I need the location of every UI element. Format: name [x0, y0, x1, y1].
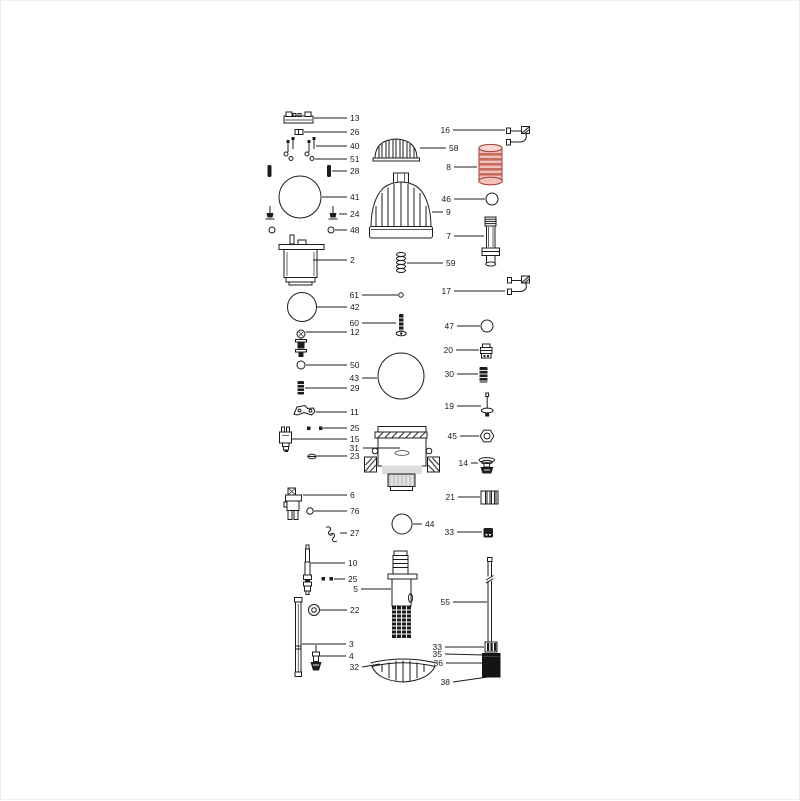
- callout-22-nut: 22: [320, 605, 360, 615]
- callout-61-pin-small: 61: [350, 290, 398, 300]
- callout-number: 29: [350, 383, 360, 393]
- callout-number: 6: [350, 490, 355, 500]
- callout-number: 19: [445, 401, 455, 411]
- part-46-o-ring: [486, 193, 498, 205]
- part-14-valve-poppet: [479, 458, 495, 474]
- callout-number: 33: [445, 527, 455, 537]
- callout-number: 25: [348, 574, 358, 584]
- callout-number: 9: [446, 207, 451, 217]
- callout-6-valve-assembly: 6: [303, 490, 355, 500]
- callout-3-tube-long: 3: [302, 639, 354, 649]
- parts-diagram-page: 1326405128412448261426012504329112515312…: [0, 0, 800, 800]
- callout-21-threaded-insert: 21: [446, 492, 480, 502]
- part-33-collar-ribbed: [485, 642, 497, 652]
- part-5-impeller-assembly: [388, 551, 417, 638]
- callout-13-clamp-bar: 13: [314, 113, 360, 123]
- callout-25-square-nuts: 25: [334, 574, 358, 584]
- callout-number: 55: [441, 597, 451, 607]
- callout-number: 38: [441, 677, 451, 687]
- callout-number: 30: [445, 369, 455, 379]
- callout-number: 41: [350, 192, 360, 202]
- part-6-valve-assembly: [284, 488, 302, 520]
- callout-number: 20: [444, 345, 454, 355]
- callout-25-square-nuts: 25: [323, 423, 360, 433]
- callout-number: 26: [350, 127, 360, 137]
- callout-38-float-block-bottom: 38: [441, 677, 488, 687]
- callout-number: 76: [350, 506, 360, 516]
- part-23-clip-small: [308, 454, 317, 458]
- callout-number: 13: [350, 113, 360, 123]
- callout-number: 24: [350, 209, 360, 219]
- part-47-o-ring: [481, 320, 493, 332]
- callout-4-valve-small: 4: [320, 651, 354, 661]
- part-40-screws: [287, 137, 316, 152]
- part-12-bolt-assembly: [296, 330, 307, 357]
- part-17-hose-hook: [508, 276, 530, 295]
- callout-46-o-ring: 46: [442, 194, 485, 204]
- callout-number: 28: [350, 166, 360, 176]
- part-25-square-nuts-a: [307, 427, 323, 431]
- callout-number: 21: [446, 492, 456, 502]
- callout-48-rings-small: 48: [335, 225, 360, 235]
- callout-45-hex-nut: 45: [448, 431, 479, 441]
- callout-number: 59: [446, 258, 456, 268]
- part-50-o-ring-small: [297, 361, 305, 369]
- callout-26-retainer-clip: 26: [304, 127, 360, 137]
- part-29-pin-ribbed: [298, 381, 305, 395]
- part-16-hose-hook: [507, 127, 530, 146]
- callout-44-o-ring-medium: 44: [413, 519, 435, 529]
- callout-58-cap-striped: 58: [420, 143, 459, 153]
- part-21-threaded-insert: [481, 491, 498, 504]
- callout-number: 46: [442, 194, 452, 204]
- part-10-shaft-rod: [304, 545, 312, 595]
- part-7-outlet-fitting: [482, 217, 500, 266]
- callout-7-outlet-fitting: 7: [446, 231, 484, 241]
- leader-line: [453, 677, 488, 682]
- part-19-screw-long: [481, 393, 493, 417]
- part-51-washers: [284, 152, 314, 161]
- callout-55-float-rod: 55: [441, 597, 487, 607]
- part-41-o-ring-large: [279, 176, 321, 218]
- callout-51-washers: 51: [315, 154, 360, 164]
- callout-number: 40: [350, 141, 360, 151]
- callout-8-coupling-highlighted: 8: [446, 162, 477, 172]
- callout-number: 16: [441, 125, 451, 135]
- callout-47-o-ring: 47: [445, 321, 480, 331]
- leader-line: [445, 654, 484, 655]
- callout-33-cap-small: 33: [445, 527, 482, 537]
- part-33-cap-small: [484, 528, 494, 538]
- callout-number: 10: [348, 558, 358, 568]
- callout-2-motor-housing: 2: [313, 255, 355, 265]
- callout-number: 43: [350, 373, 360, 383]
- part-42-o-ring-medium: [288, 293, 317, 322]
- callout-59-spring: 59: [407, 258, 456, 268]
- part-11-lever-bracket: [294, 406, 315, 416]
- callout-16-hose-hook: 16: [441, 125, 505, 135]
- callout-12-bolt-assembly: 12: [306, 327, 360, 337]
- callout-number: 51: [350, 154, 360, 164]
- callout-14-valve-poppet: 14: [459, 458, 478, 468]
- part-55-float-rod: [486, 558, 494, 646]
- callout-43-o-ring-large: 43: [350, 373, 377, 383]
- callout-17-hose-hook: 17: [442, 286, 505, 296]
- part-8-coupling-highlighted: [479, 144, 503, 184]
- callout-41-o-ring-large: 41: [322, 192, 360, 202]
- callout-27-spring-clips: 27: [340, 528, 360, 538]
- exploded-parts-diagram: 1326405128412448261426012504329112515312…: [1, 1, 800, 801]
- callout-number: 22: [350, 605, 360, 615]
- callout-42-o-ring-medium: 42: [317, 302, 360, 312]
- callout-50-o-ring-small: 50: [306, 360, 360, 370]
- callout-23-clip-small: 23: [317, 451, 360, 461]
- callout-number: 47: [445, 321, 455, 331]
- part-15-valve-body: [280, 427, 292, 452]
- part-48-rings-small: [269, 227, 334, 233]
- part-61-pin-small: [399, 293, 403, 297]
- part-3-tube-long: [295, 598, 303, 677]
- callout-5-impeller-assembly: 5: [353, 584, 391, 594]
- part-9-strainer-cage: [370, 173, 433, 238]
- callout-number: 36: [434, 658, 444, 668]
- callout-10-shaft-rod: 10: [311, 558, 358, 568]
- callout-number: 61: [350, 290, 360, 300]
- callout-76-o-ring-small: 76: [314, 506, 360, 516]
- part-45-hex-nut: [480, 430, 494, 442]
- callout-9-strainer-cage: 9: [432, 207, 451, 217]
- callout-30-pin-ribbed: 30: [445, 369, 478, 379]
- callout-number: 25: [350, 423, 360, 433]
- callout-number: 42: [350, 302, 360, 312]
- callout-number: 58: [449, 143, 459, 153]
- part-76-o-ring-small: [307, 508, 313, 514]
- callout-number: 27: [350, 528, 360, 538]
- callout-number: 2: [350, 255, 355, 265]
- parts-layer: [266, 112, 530, 682]
- callout-29-pin-ribbed: 29: [305, 383, 360, 393]
- callout-number: 44: [425, 519, 435, 529]
- callout-number: 17: [442, 286, 452, 296]
- part-43-o-ring-large: [378, 353, 424, 399]
- callout-number: 3: [349, 639, 354, 649]
- callout-number: 8: [446, 162, 451, 172]
- part-25-square-nuts-b: [322, 577, 334, 581]
- callout-number: 23: [350, 451, 360, 461]
- part-13-clamp-bar: [284, 112, 313, 123]
- callout-20-cap-fitting: 20: [444, 345, 479, 355]
- callout-number: 14: [459, 458, 469, 468]
- callout-number: 48: [350, 225, 360, 235]
- callout-number: 5: [353, 584, 358, 594]
- callout-28-pins: 28: [332, 166, 360, 176]
- callout-number: 50: [350, 360, 360, 370]
- callout-19-screw-long: 19: [445, 401, 481, 411]
- part-59-spring: [397, 253, 406, 273]
- callout-number: 4: [349, 651, 354, 661]
- callout-number: 12: [350, 327, 360, 337]
- part-30-pin-ribbed: [480, 367, 488, 383]
- part-24-bolts: [266, 206, 338, 219]
- callout-36-float-block: 36: [434, 658, 482, 668]
- part-31-pump-housing: [365, 427, 440, 491]
- callout-number: 32: [350, 662, 360, 672]
- part-22-nut: [309, 605, 320, 616]
- callout-number: 11: [350, 407, 359, 417]
- part-58-cap-striped: [373, 139, 420, 161]
- callout-24-bolts: 24: [339, 209, 360, 219]
- part-28-pins: [268, 165, 332, 177]
- callout-number: 7: [446, 231, 451, 241]
- part-36-float-block: [483, 654, 501, 678]
- callout-40-screws: 40: [316, 141, 360, 151]
- part-60-screw-threaded: [396, 314, 406, 336]
- part-27-spring-clips: [326, 527, 337, 542]
- part-26-retainer-clip: [295, 130, 303, 135]
- callout-11-lever-bracket: 11: [316, 407, 359, 417]
- part-32-strainer-dome: [371, 659, 437, 682]
- callout-number: 45: [448, 431, 458, 441]
- part-4-valve-small: [311, 645, 322, 671]
- part-44-o-ring-medium: [392, 514, 412, 534]
- part-20-cap-fitting: [481, 344, 493, 358]
